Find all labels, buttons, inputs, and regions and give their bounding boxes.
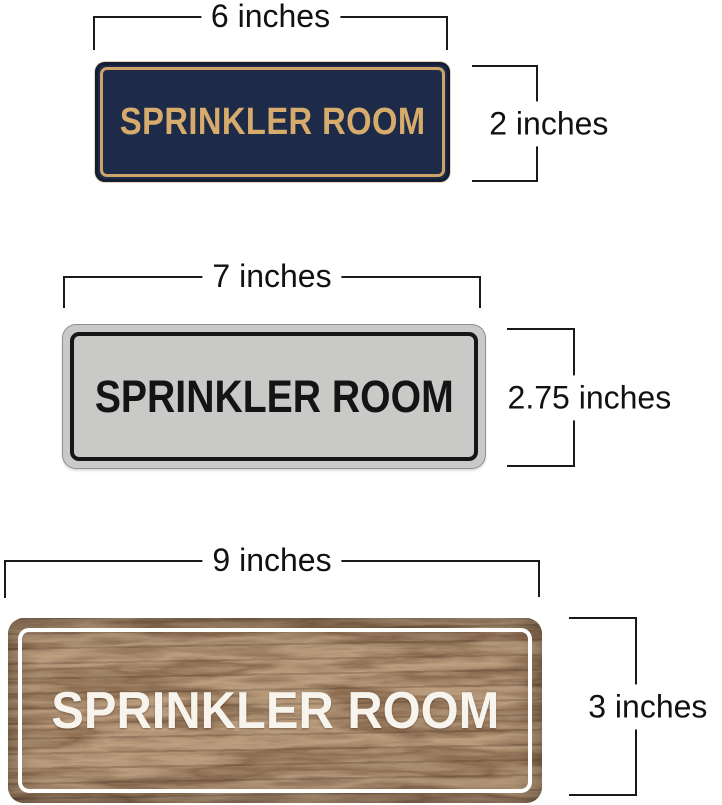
height-dimension-label-sign3: 3 inches bbox=[580, 684, 715, 729]
sign-text-silver: SPRINKLER ROOM bbox=[95, 371, 454, 423]
dimension-end-tick bbox=[569, 617, 637, 619]
dimension-end-tick bbox=[479, 276, 481, 308]
dimension-end-tick bbox=[569, 794, 637, 796]
dimension-end-tick bbox=[538, 560, 540, 597]
height-dimension-bracket-sign2: 2.75 inches bbox=[507, 328, 575, 467]
sprinkler-sign-silver: SPRINKLER ROOM bbox=[63, 325, 485, 468]
dimension-end-tick bbox=[93, 16, 95, 50]
dimension-end-tick bbox=[507, 328, 575, 330]
dimension-end-tick bbox=[472, 180, 538, 182]
dimension-end-tick bbox=[63, 276, 65, 308]
sprinkler-sign-navy-gold: SPRINKLER ROOM bbox=[95, 62, 450, 182]
dimension-end-tick bbox=[472, 65, 538, 67]
height-dimension-bracket-sign3: 3 inches bbox=[569, 617, 637, 796]
sign-text-walnut: SPRINKLER ROOM bbox=[51, 681, 499, 741]
dimension-end-tick bbox=[4, 560, 6, 598]
sign-size-comparison-diagram: 6 inches SPRINKLER ROOM 2 inches 7 inche… bbox=[0, 0, 722, 805]
dimension-end-tick bbox=[507, 465, 575, 467]
sprinkler-sign-walnut: SPRINKLER ROOM bbox=[8, 618, 542, 803]
height-dimension-label-sign1: 2 inches bbox=[481, 101, 616, 146]
width-dimension-label-sign3: 9 inches bbox=[202, 543, 341, 579]
height-dimension-bracket-sign1: 2 inches bbox=[472, 65, 538, 182]
sign-text-navy-gold: SPRINKLER ROOM bbox=[120, 101, 426, 144]
dimension-end-tick bbox=[446, 16, 448, 50]
width-dimension-label-sign1: 6 inches bbox=[201, 0, 340, 35]
height-dimension-label-sign2: 2.75 inches bbox=[500, 375, 680, 420]
width-dimension-label-sign2: 7 inches bbox=[202, 259, 341, 295]
